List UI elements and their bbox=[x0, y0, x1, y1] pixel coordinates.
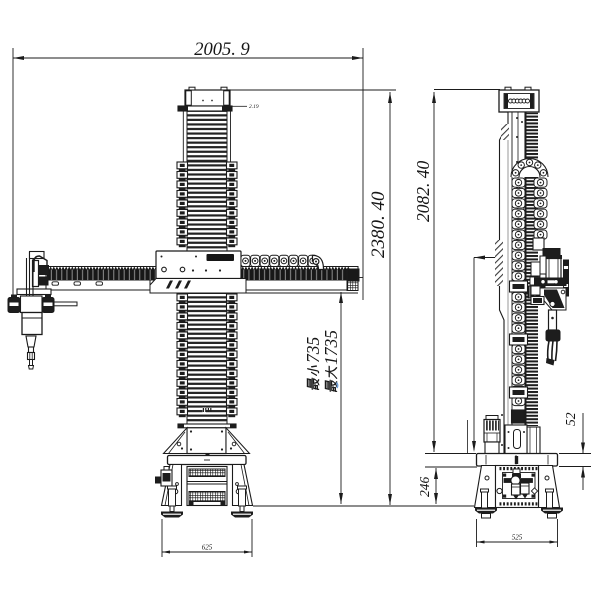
svg-text:52: 52 bbox=[563, 412, 578, 426]
svg-text:1735: 1735 bbox=[321, 330, 341, 365]
svg-text:625: 625 bbox=[202, 544, 213, 552]
svg-text:2005. 9: 2005. 9 bbox=[194, 40, 250, 60]
svg-text:XXXXX: XXXXX bbox=[211, 256, 229, 262]
svg-text:2380. 40: 2380. 40 bbox=[368, 191, 389, 258]
svg-text:2.19: 2.19 bbox=[249, 104, 259, 110]
svg-text:735: 735 bbox=[303, 337, 323, 364]
svg-text:2082. 40: 2082. 40 bbox=[413, 161, 433, 223]
svg-text:525: 525 bbox=[512, 534, 523, 542]
svg-text:246: 246 bbox=[417, 477, 432, 498]
